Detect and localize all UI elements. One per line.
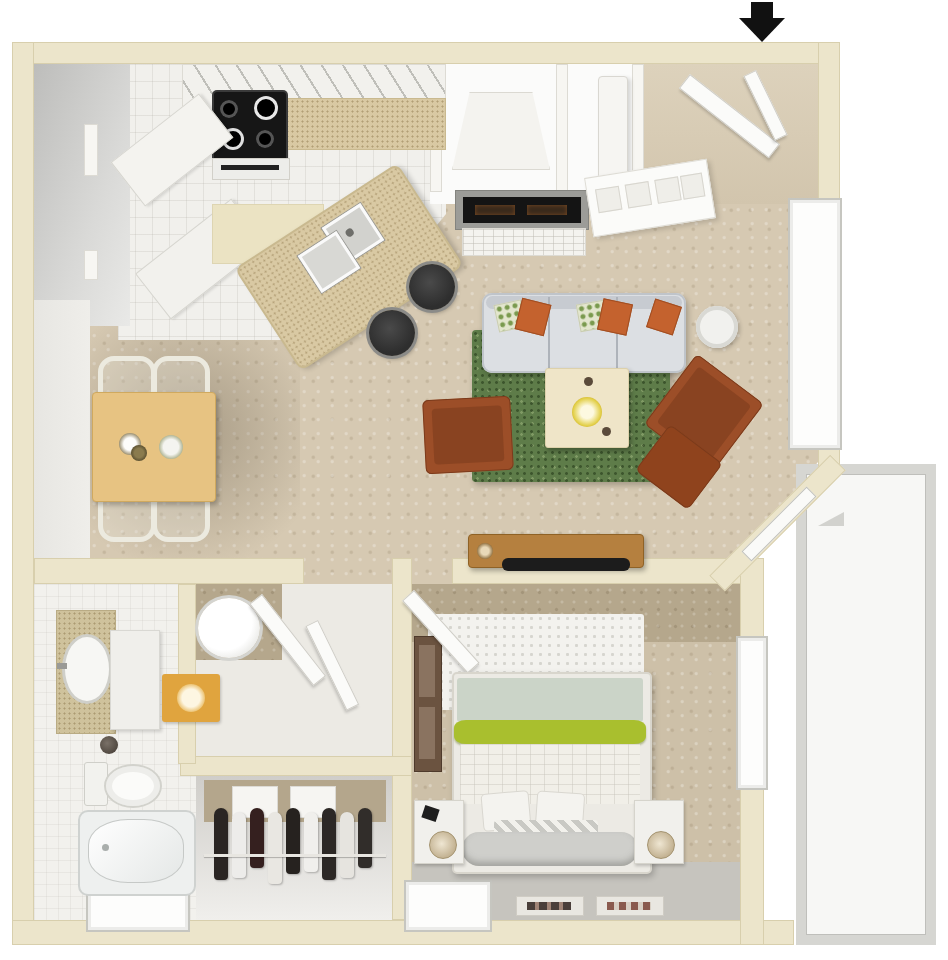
toilet-bowl — [104, 764, 162, 808]
bedroom-bottom-window — [404, 880, 492, 932]
decor-plate — [572, 397, 602, 427]
living-room-window — [788, 198, 842, 450]
lamp — [647, 831, 675, 859]
down-arrow-icon — [739, 18, 785, 42]
console-square — [625, 181, 652, 208]
floor-mat — [596, 896, 664, 916]
fire-log — [475, 205, 515, 215]
bed-lime-stripe — [454, 720, 646, 744]
garment — [214, 808, 228, 880]
burner — [220, 100, 238, 118]
bar-stool — [369, 310, 415, 356]
left-wall-face — [34, 300, 90, 584]
bed-sage-band — [457, 678, 643, 722]
vanity-cabinet — [110, 630, 160, 730]
dining-table — [92, 392, 216, 502]
faucet — [57, 663, 67, 669]
bar-stool — [409, 264, 455, 310]
fireplace-hearth — [462, 228, 586, 256]
wall-left — [12, 42, 34, 945]
hall-window-tab — [84, 250, 98, 280]
armchair-seat — [432, 405, 505, 465]
fireplace-insert — [463, 197, 581, 223]
entrance-arrow — [739, 2, 785, 44]
mat-circle — [177, 684, 205, 712]
decor-dot — [602, 427, 611, 436]
table-setting — [159, 435, 183, 459]
wall-closet-top — [180, 756, 412, 776]
armchair — [422, 396, 514, 475]
hanging-clothes — [210, 808, 382, 892]
fireplace — [455, 190, 589, 230]
bed-bolster — [462, 832, 638, 866]
tv-screen — [502, 558, 630, 571]
console-square — [595, 186, 622, 213]
burner — [254, 96, 278, 120]
closet-rod — [204, 854, 386, 857]
dresser-panel — [419, 707, 435, 759]
garment — [232, 812, 246, 878]
garment — [304, 812, 318, 872]
dresser-panel — [419, 645, 435, 697]
decor-dot — [584, 377, 593, 386]
garment — [340, 812, 354, 878]
orange-pillow — [597, 298, 633, 336]
fire-log — [527, 205, 567, 215]
mat-pattern — [527, 902, 571, 910]
trash-can — [100, 736, 118, 754]
patio-door-swing-mark — [818, 512, 844, 526]
mat-pattern — [607, 902, 651, 910]
coffee-table — [545, 368, 629, 448]
hall-window-tab — [84, 124, 98, 176]
closet-partition — [556, 64, 568, 192]
tub-drain — [102, 844, 109, 851]
console-square — [654, 176, 681, 203]
patio — [796, 464, 936, 945]
stove-front — [212, 158, 290, 180]
garment — [268, 812, 282, 884]
left-hall-wall-face — [34, 64, 130, 326]
nightstand — [414, 800, 464, 864]
side-table — [696, 306, 738, 348]
wall-divider-bath — [34, 558, 304, 584]
kitchen-counter — [284, 98, 446, 150]
table-setting — [131, 445, 147, 461]
vanity-sink — [62, 634, 112, 704]
dresser — [414, 636, 442, 772]
orange-pillow — [515, 298, 552, 336]
console-knob — [477, 543, 493, 559]
nightstand-decor — [421, 805, 439, 822]
wall-bedroom-left — [392, 558, 412, 920]
bed — [452, 672, 652, 874]
washer — [198, 598, 260, 658]
garment — [286, 808, 300, 874]
wall-top — [12, 42, 840, 64]
oven-handle — [221, 165, 279, 170]
lamp — [429, 831, 457, 859]
garment — [250, 808, 264, 868]
orange-mat — [162, 674, 220, 722]
console-square — [680, 173, 705, 200]
bedroom-right-window — [736, 636, 768, 790]
bathtub — [78, 810, 196, 896]
nightstand — [634, 800, 684, 864]
tub-basin — [88, 819, 184, 883]
burner — [256, 130, 274, 148]
faucet-dot — [344, 227, 355, 238]
garment — [322, 808, 336, 880]
floor-plan-image — [0, 0, 948, 960]
garment — [358, 808, 372, 868]
floor-mat — [516, 896, 584, 916]
sofa — [482, 293, 686, 373]
